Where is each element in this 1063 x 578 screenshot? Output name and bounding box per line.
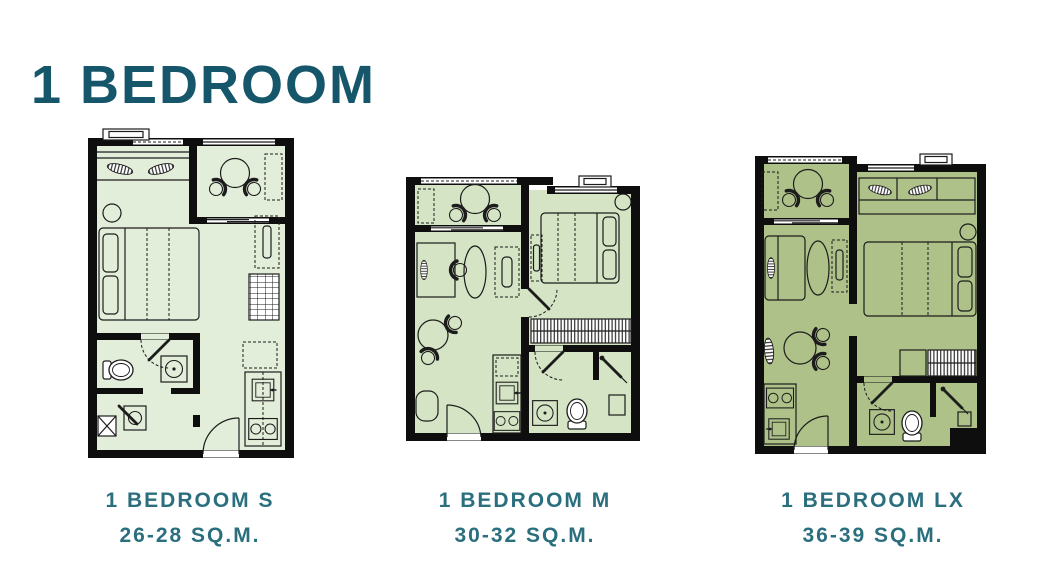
plan-label-s: 1 BEDROOM S 26-28 SQ.M. <box>40 490 340 546</box>
floor-plan-card-lx <box>752 152 992 462</box>
ac-unit-icon <box>103 129 149 140</box>
floor-plan-s-drawing <box>85 128 297 470</box>
plan-area: 26-28 SQ.M. <box>40 525 340 546</box>
shaft-icon <box>98 416 116 436</box>
ac-unit-icon <box>920 154 952 165</box>
plan-area: 30-32 SQ.M. <box>375 525 675 546</box>
toilet-icon <box>103 360 133 380</box>
wardrobe-hatch-icon <box>928 350 976 376</box>
floor-plan-m-drawing <box>403 173 647 445</box>
plan-label-m: 1 BEDROOM M 30-32 SQ.M. <box>375 490 675 546</box>
floor-plans-page: 1 BEDROOM <box>0 0 1063 578</box>
plan-name: 1 BEDROOM LX <box>723 490 1023 511</box>
floor-plan-card-m <box>403 173 647 445</box>
toilet-icon <box>902 411 922 441</box>
toilet-icon <box>567 399 587 429</box>
plan-label-lx: 1 BEDROOM LX 36-39 SQ.M. <box>723 490 1023 546</box>
shelf-icon <box>249 274 279 320</box>
plan-name: 1 BEDROOM S <box>40 490 340 511</box>
plan-name: 1 BEDROOM M <box>375 490 675 511</box>
wardrobe-icon <box>531 319 631 343</box>
ac-unit-icon <box>579 176 611 187</box>
floor-plan-lx-drawing <box>752 152 992 462</box>
floor-plan-card-s <box>85 128 297 470</box>
plan-area: 36-39 SQ.M. <box>723 525 1023 546</box>
page-title: 1 BEDROOM <box>31 54 376 116</box>
